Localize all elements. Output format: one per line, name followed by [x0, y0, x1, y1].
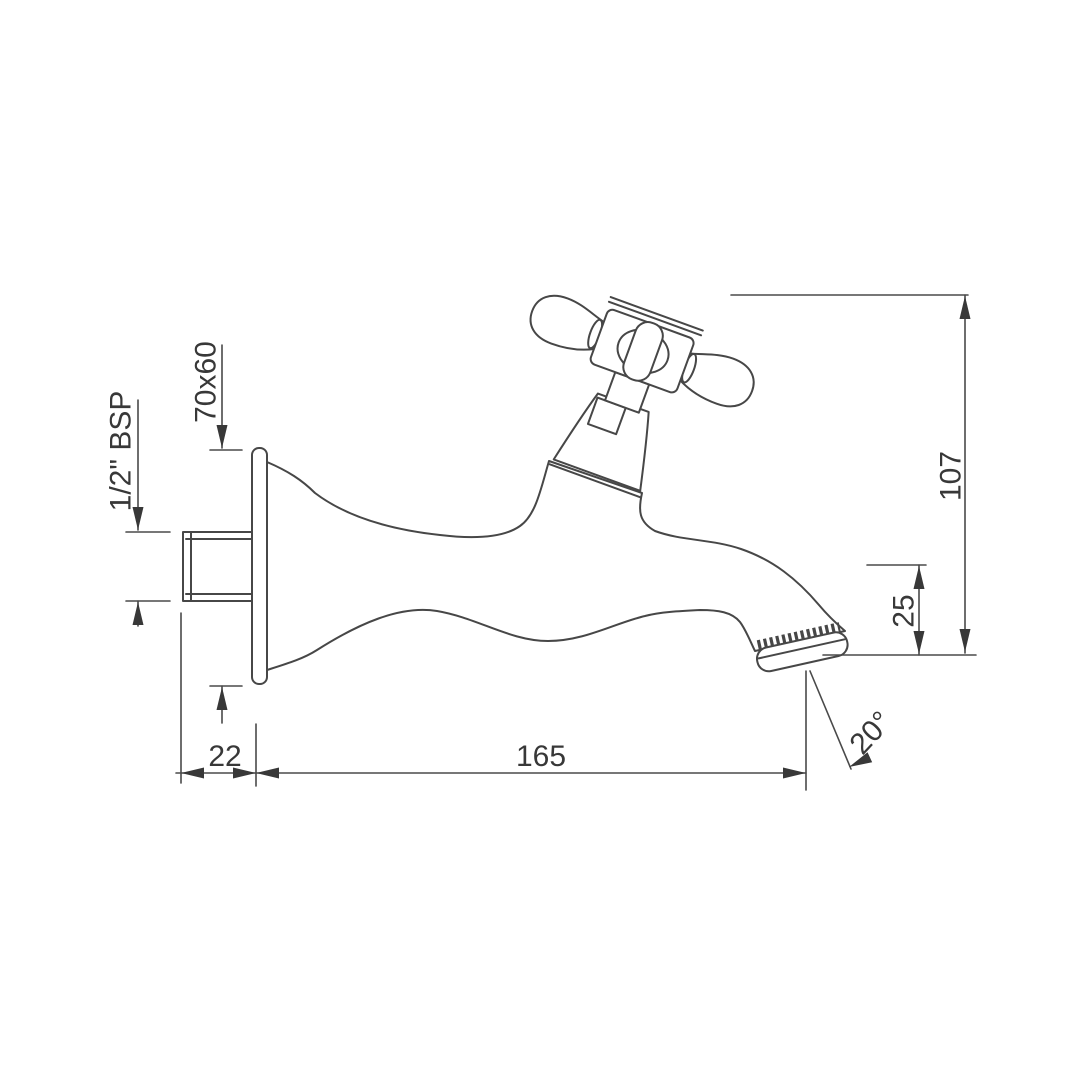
dim-label-tip-drop: 25 [888, 594, 921, 627]
dim-label-overall-height: 107 [935, 451, 968, 501]
handle-assembly [485, 273, 766, 520]
dim-label-inlet-thread: 1/2" BSP [105, 391, 138, 512]
technical-drawing-page: 70x60 1/2" BSP 107 25 22 165 20° [0, 0, 1080, 1080]
dim-label-spout-angle: 20° [843, 705, 898, 761]
arrow-height-bottom [960, 629, 971, 652]
arrow-thread-bottom [133, 602, 144, 625]
dim-label-spout-reach: 165 [516, 740, 566, 773]
arrow-165-left [256, 768, 279, 779]
arrow-drop-top [914, 566, 925, 589]
inlet-thread [183, 532, 256, 601]
arrow-flange-bottom [217, 687, 228, 710]
arrow-drop-bottom [914, 631, 925, 654]
leader-spout-angle [810, 671, 851, 769]
wall-flange [252, 448, 267, 684]
faucet-body [267, 461, 845, 670]
arrow-height-top [960, 296, 971, 319]
arrow-22-left [181, 768, 204, 779]
faucet-technical-drawing: 70x60 1/2" BSP 107 25 22 165 20° [0, 0, 1080, 1080]
faucet-outline [183, 273, 850, 684]
arrow-165-right [783, 768, 806, 779]
dim-label-flange-size: 70x60 [190, 341, 223, 423]
arrow-flange-top [217, 425, 228, 448]
dim-label-thread-length: 22 [208, 740, 241, 773]
